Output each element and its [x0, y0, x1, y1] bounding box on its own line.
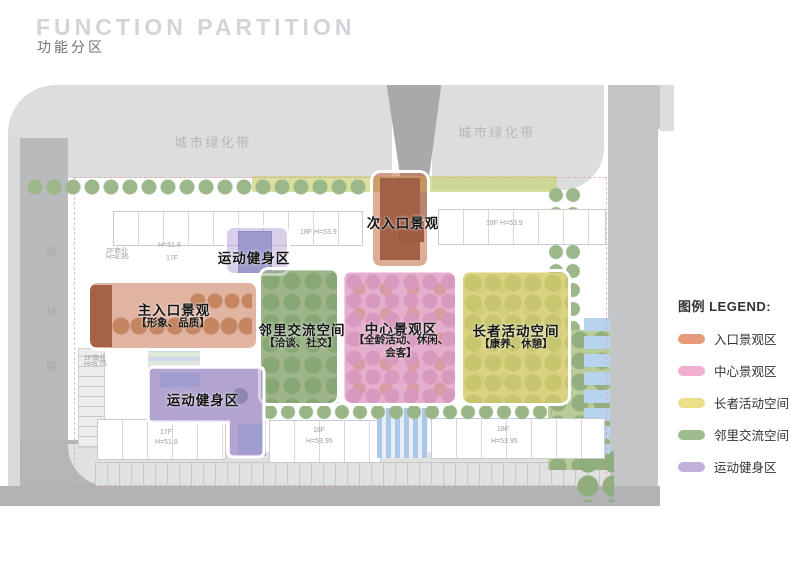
road-name-char-3: 路	[46, 358, 57, 374]
building-label: 17F	[166, 255, 178, 262]
legend-label-sports: 运动健身区	[714, 457, 777, 476]
page-title-chinese: 功能分区	[37, 37, 105, 57]
zone-sublabel-central-landscape: 【全龄活动、休闲、会客】	[349, 334, 453, 360]
building-label: 17F	[160, 429, 172, 436]
road-name-char-2: 林	[46, 303, 57, 319]
zone-label-secondary-entrance: 次入口景观	[367, 212, 440, 232]
parcel-boundary-bottom	[74, 485, 610, 486]
road-bottom	[0, 486, 660, 506]
legend-item-sports: 运动健身区	[678, 457, 796, 476]
parcel-boundary-top	[74, 177, 606, 178]
zone-label-sports-lower: 运动健身区	[167, 389, 240, 409]
building-label: H=53.95	[491, 438, 518, 445]
sidewalk-right-edge	[660, 85, 674, 131]
building-label: H=8.75	[84, 361, 107, 368]
legend: 图例 LEGEND: 入口景观区 中心景观区 长者活动空间 邻里交流空间 运动健…	[678, 296, 796, 476]
building-label: 18F H=53.9	[486, 220, 523, 227]
building-label: H=8.85	[106, 254, 129, 261]
parking-ladder-bottom	[95, 462, 610, 485]
legend-title: 图例 LEGEND:	[678, 296, 796, 315]
parcel-boundary-right	[606, 177, 607, 485]
parcel-boundary-left	[74, 177, 75, 485]
legend-item-central: 中心景观区	[678, 361, 796, 380]
sports-court-lower-b	[238, 424, 262, 454]
sports-court-lower-a	[160, 373, 200, 387]
building-label: 18F	[313, 427, 325, 434]
legend-label-elder: 长者活动空间	[714, 393, 789, 412]
zone-sublabel-main-entrance: 【形象、品质】	[136, 315, 210, 330]
legend-swatch-sports	[678, 462, 705, 472]
greenbelt-label-left: 城市绿化带	[174, 132, 252, 151]
greenbelt-label-right: 城市绿化带	[458, 122, 536, 141]
legend-item-elder: 长者活动空间	[678, 393, 796, 412]
sidewalk-left-edge	[8, 138, 20, 506]
legend-label-neighborhood: 邻里交流空间	[714, 425, 789, 444]
function-partition-slide: FUNCTION PARTITION 功能分区	[0, 0, 800, 565]
building-label: 18F	[497, 426, 509, 433]
legend-swatch-central	[678, 366, 705, 376]
legend-list: 入口景观区 中心景观区 长者活动空间 邻里交流空间 运动健身区	[678, 329, 796, 476]
road-name-char-1: 振	[46, 243, 57, 259]
main-entrance-building	[90, 285, 112, 347]
building-label: H=53.95	[306, 438, 333, 445]
building-row-bottom-right	[431, 418, 605, 459]
legend-label-central: 中心景观区	[714, 361, 777, 380]
building-label: 18F H=53.9	[300, 229, 337, 236]
zone-sublabel-elder-activity: 【康养、休憩】	[479, 336, 553, 351]
tree-row-mid	[262, 404, 552, 420]
building-label: H=51.9	[158, 242, 181, 249]
legend-item-entrance: 入口景观区	[678, 329, 796, 348]
zone-label-sports-upper: 运动健身区	[218, 247, 291, 267]
road-right	[608, 85, 658, 505]
building-label: H=51.8	[155, 439, 178, 446]
legend-swatch-elder	[678, 398, 705, 408]
building-row-top-right	[438, 209, 606, 245]
legend-item-neighborhood: 邻里交流空间	[678, 425, 796, 444]
planting-strip-mid-left	[148, 348, 200, 368]
legend-swatch-entrance	[678, 334, 705, 344]
legend-swatch-neighborhood	[678, 430, 705, 440]
tree-row-top	[26, 177, 366, 197]
legend-label-entrance: 入口景观区	[714, 329, 777, 348]
zone-sublabel-neighborhood: 【洽谈、社交】	[264, 335, 338, 350]
